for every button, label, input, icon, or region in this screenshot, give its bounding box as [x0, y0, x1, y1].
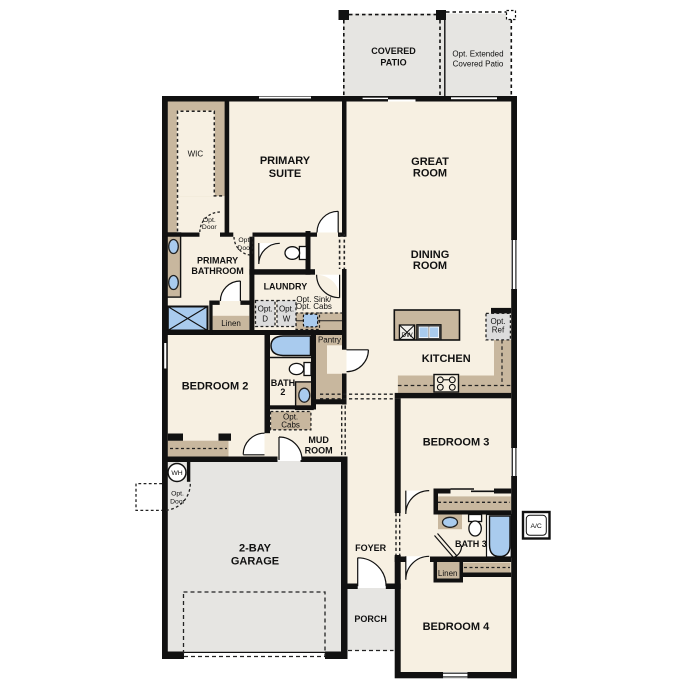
svg-text:Linen: Linen [221, 319, 241, 328]
svg-text:LAUNDRY: LAUNDRY [264, 282, 308, 292]
svg-text:WIC: WIC [188, 149, 204, 158]
svg-text:PRIMARY: PRIMARY [197, 256, 238, 266]
svg-text:BEDROOM 2: BEDROOM 2 [182, 381, 249, 393]
svg-text:FOYER: FOYER [355, 543, 387, 553]
svg-text:ROOM: ROOM [413, 167, 447, 179]
svg-text:SUITE: SUITE [269, 168, 301, 180]
svg-text:Door: Door [237, 245, 252, 252]
svg-text:Cabs: Cabs [281, 421, 300, 430]
svg-text:Opt. Cabs: Opt. Cabs [296, 302, 332, 311]
svg-text:PATIO: PATIO [380, 58, 406, 68]
svg-text:GREAT: GREAT [411, 156, 449, 168]
svg-text:PRIMARY: PRIMARY [260, 155, 311, 167]
svg-text:DW: DW [401, 332, 413, 339]
svg-text:Door: Door [202, 224, 217, 231]
svg-text:COVERED: COVERED [371, 46, 416, 56]
svg-text:Opt. Extended: Opt. Extended [452, 50, 503, 59]
svg-text:Opt.: Opt. [171, 491, 184, 498]
svg-text:MUD: MUD [308, 435, 329, 445]
svg-text:Covered Patio: Covered Patio [453, 60, 504, 69]
svg-text:ROOM: ROOM [305, 445, 333, 455]
svg-text:ROOM: ROOM [413, 260, 447, 272]
svg-text:Opt.: Opt. [258, 305, 273, 314]
svg-text:BEDROOM 3: BEDROOM 3 [423, 437, 490, 449]
svg-text:2-BAY: 2-BAY [239, 543, 272, 555]
svg-text:GARAGE: GARAGE [231, 555, 279, 567]
svg-text:Door: Door [170, 499, 185, 506]
svg-text:BATH 3: BATH 3 [455, 539, 487, 549]
svg-text:A/C: A/C [531, 523, 542, 530]
svg-text:2: 2 [280, 387, 285, 397]
svg-text:Pantry: Pantry [318, 336, 341, 345]
svg-text:Opt.: Opt. [279, 305, 294, 314]
svg-text:Ref: Ref [492, 326, 505, 335]
svg-text:KITCHEN: KITCHEN [422, 353, 471, 365]
svg-text:WH: WH [171, 470, 182, 477]
svg-text:Opt.: Opt. [203, 217, 216, 224]
svg-text:BEDROOM 4: BEDROOM 4 [423, 621, 491, 633]
svg-text:Opt.: Opt. [238, 237, 251, 244]
svg-text:D: D [262, 315, 268, 324]
svg-text:W: W [283, 315, 291, 324]
svg-text:Linen: Linen [438, 569, 458, 578]
svg-text:PORCH: PORCH [354, 614, 387, 624]
svg-text:BATHROOM: BATHROOM [191, 266, 243, 276]
